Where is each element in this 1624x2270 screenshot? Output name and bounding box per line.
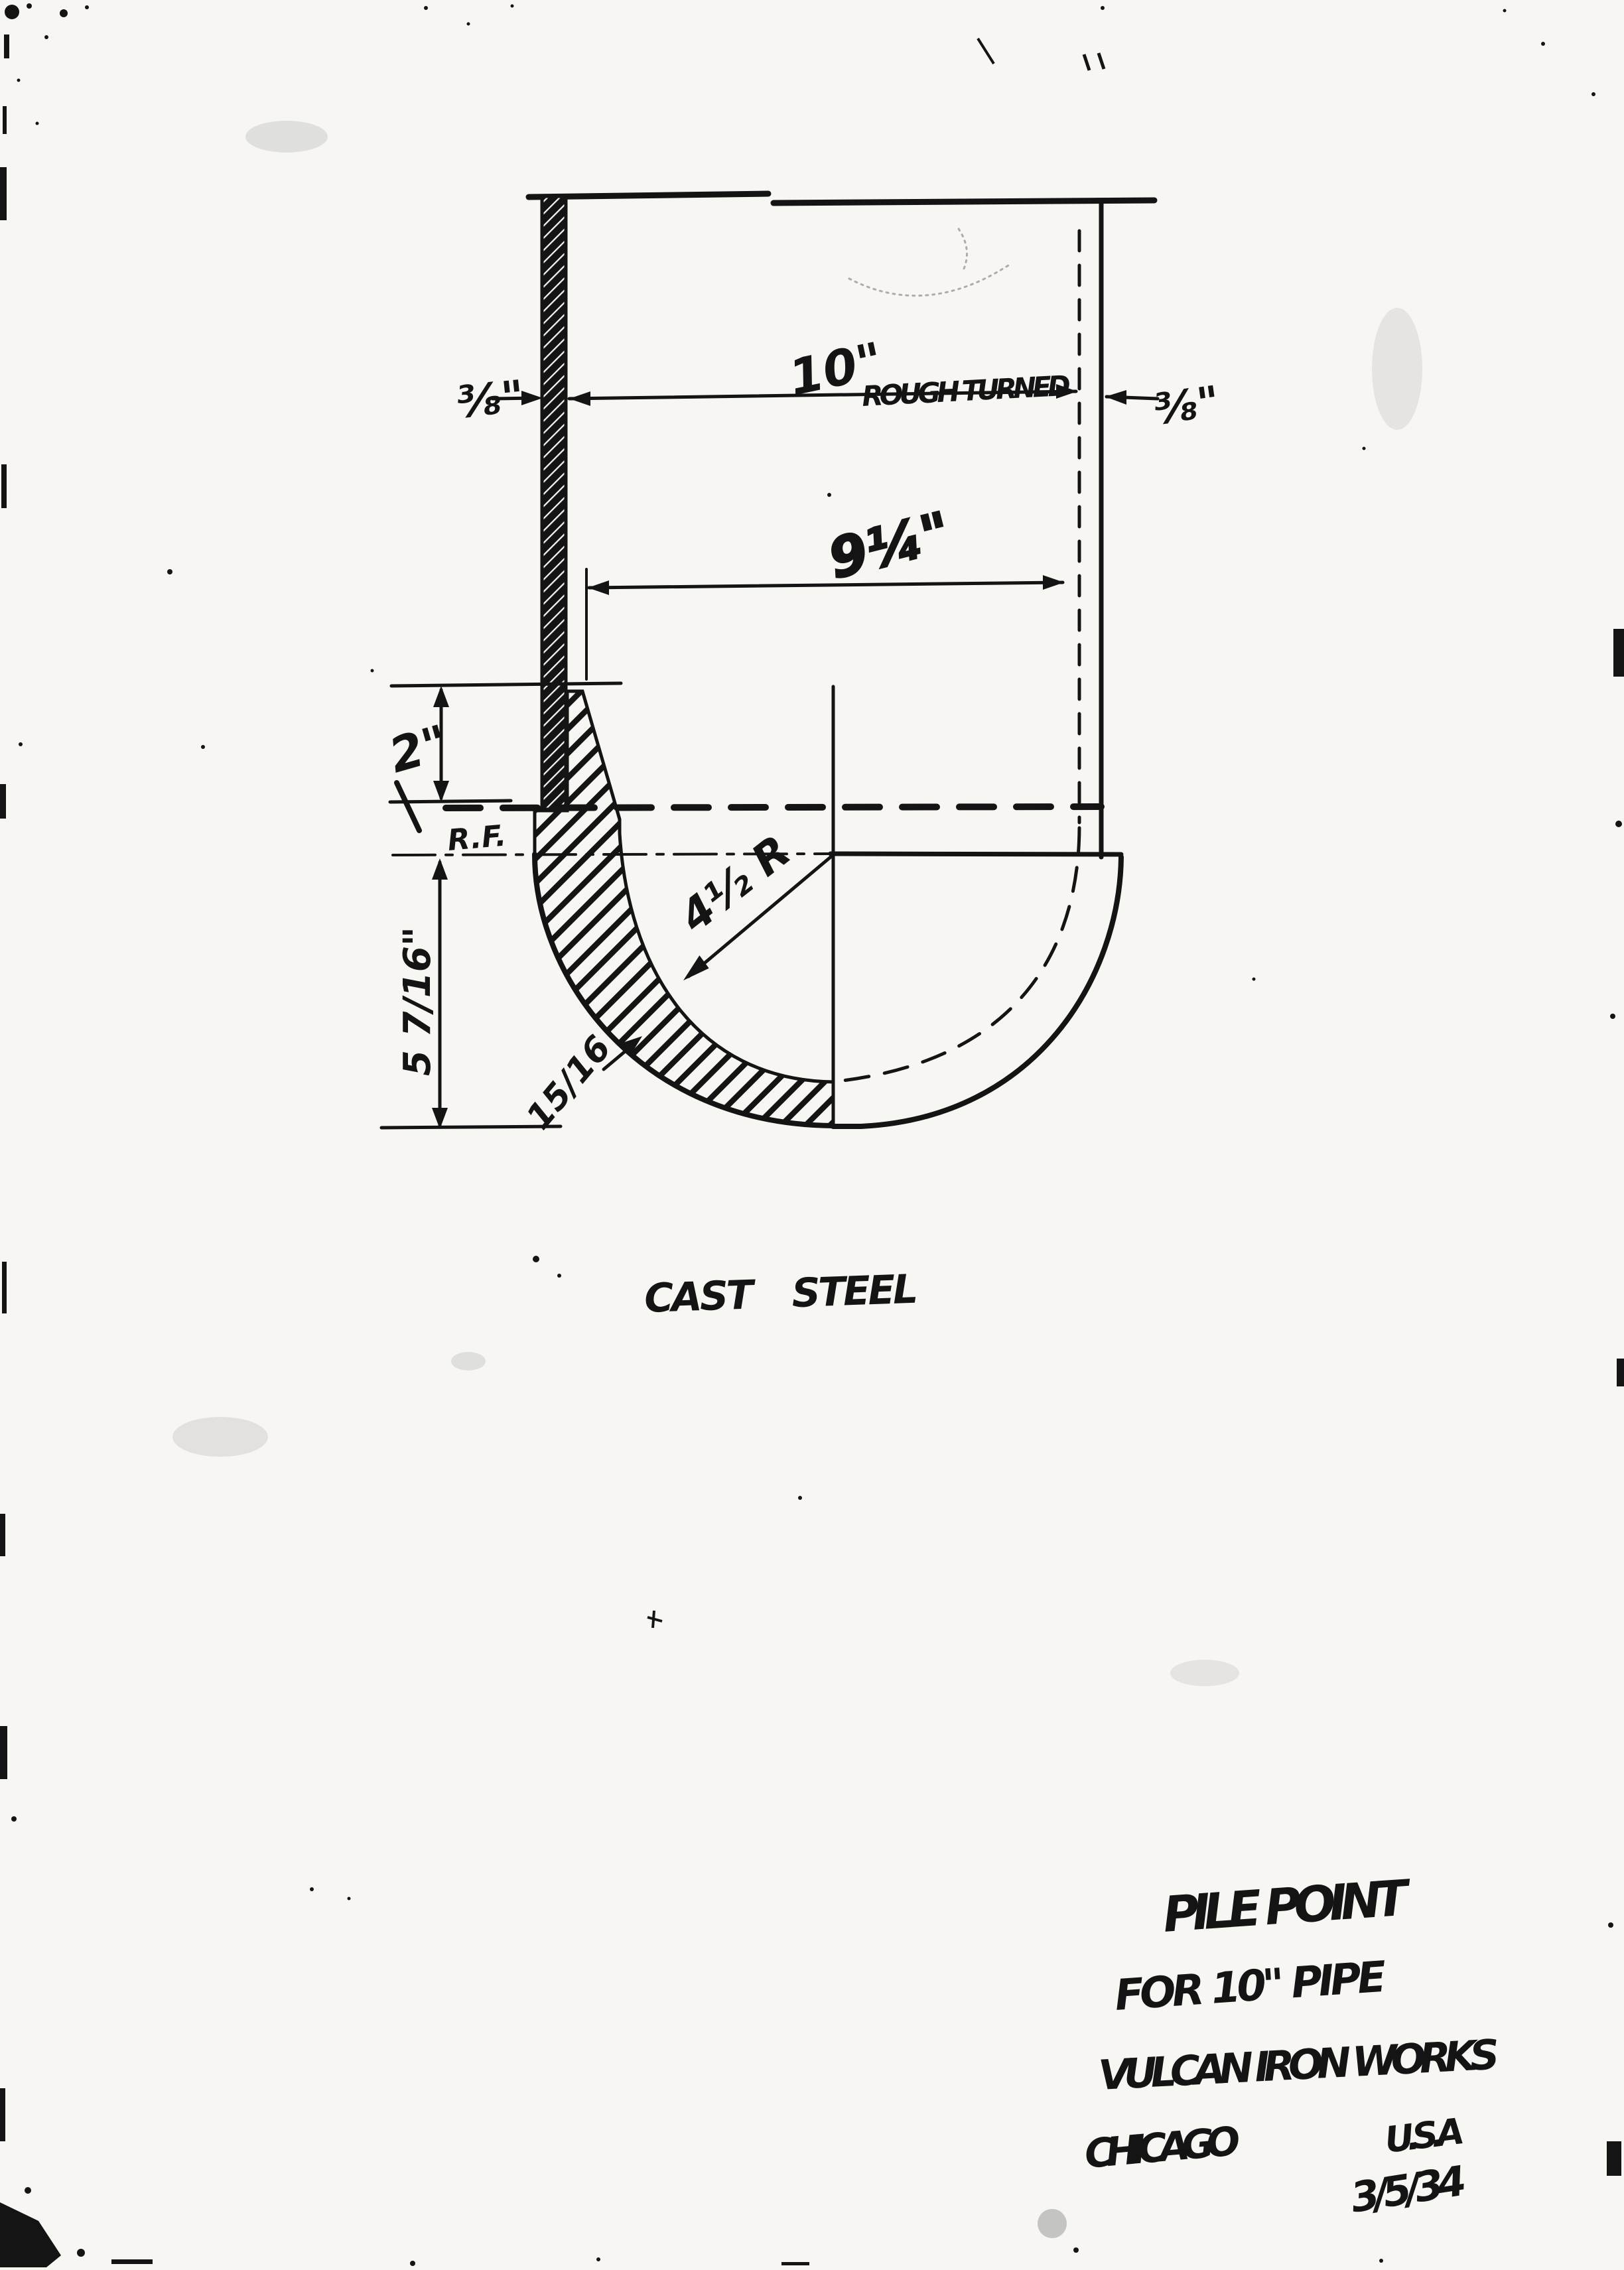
blueprint-page: ⅜" 10" ROUGH TURNED ⅜" 9¼" 2" R.F. 5 7/1… bbox=[0, 0, 1624, 2267]
dim-wall-right-text: ⅜" bbox=[1150, 377, 1223, 435]
seat-label-text: R.F. bbox=[446, 819, 508, 858]
rf-shoulder-solid-line bbox=[831, 854, 1121, 854]
drawing-svg: ⅜" 10" ROUGH TURNED ⅜" 9¼" 2" R.F. 5 7/1… bbox=[0, 0, 1624, 2267]
bottom-extension-line bbox=[381, 1126, 561, 1128]
dim-height-text: 5 7/16" bbox=[396, 927, 439, 1076]
pipe-wall-left-section bbox=[542, 196, 566, 809]
dim-wall-left-text: ⅜" bbox=[454, 371, 527, 429]
pipe-top-line-right bbox=[774, 200, 1154, 203]
material-note-text: CAST STEEL bbox=[643, 1266, 923, 1322]
